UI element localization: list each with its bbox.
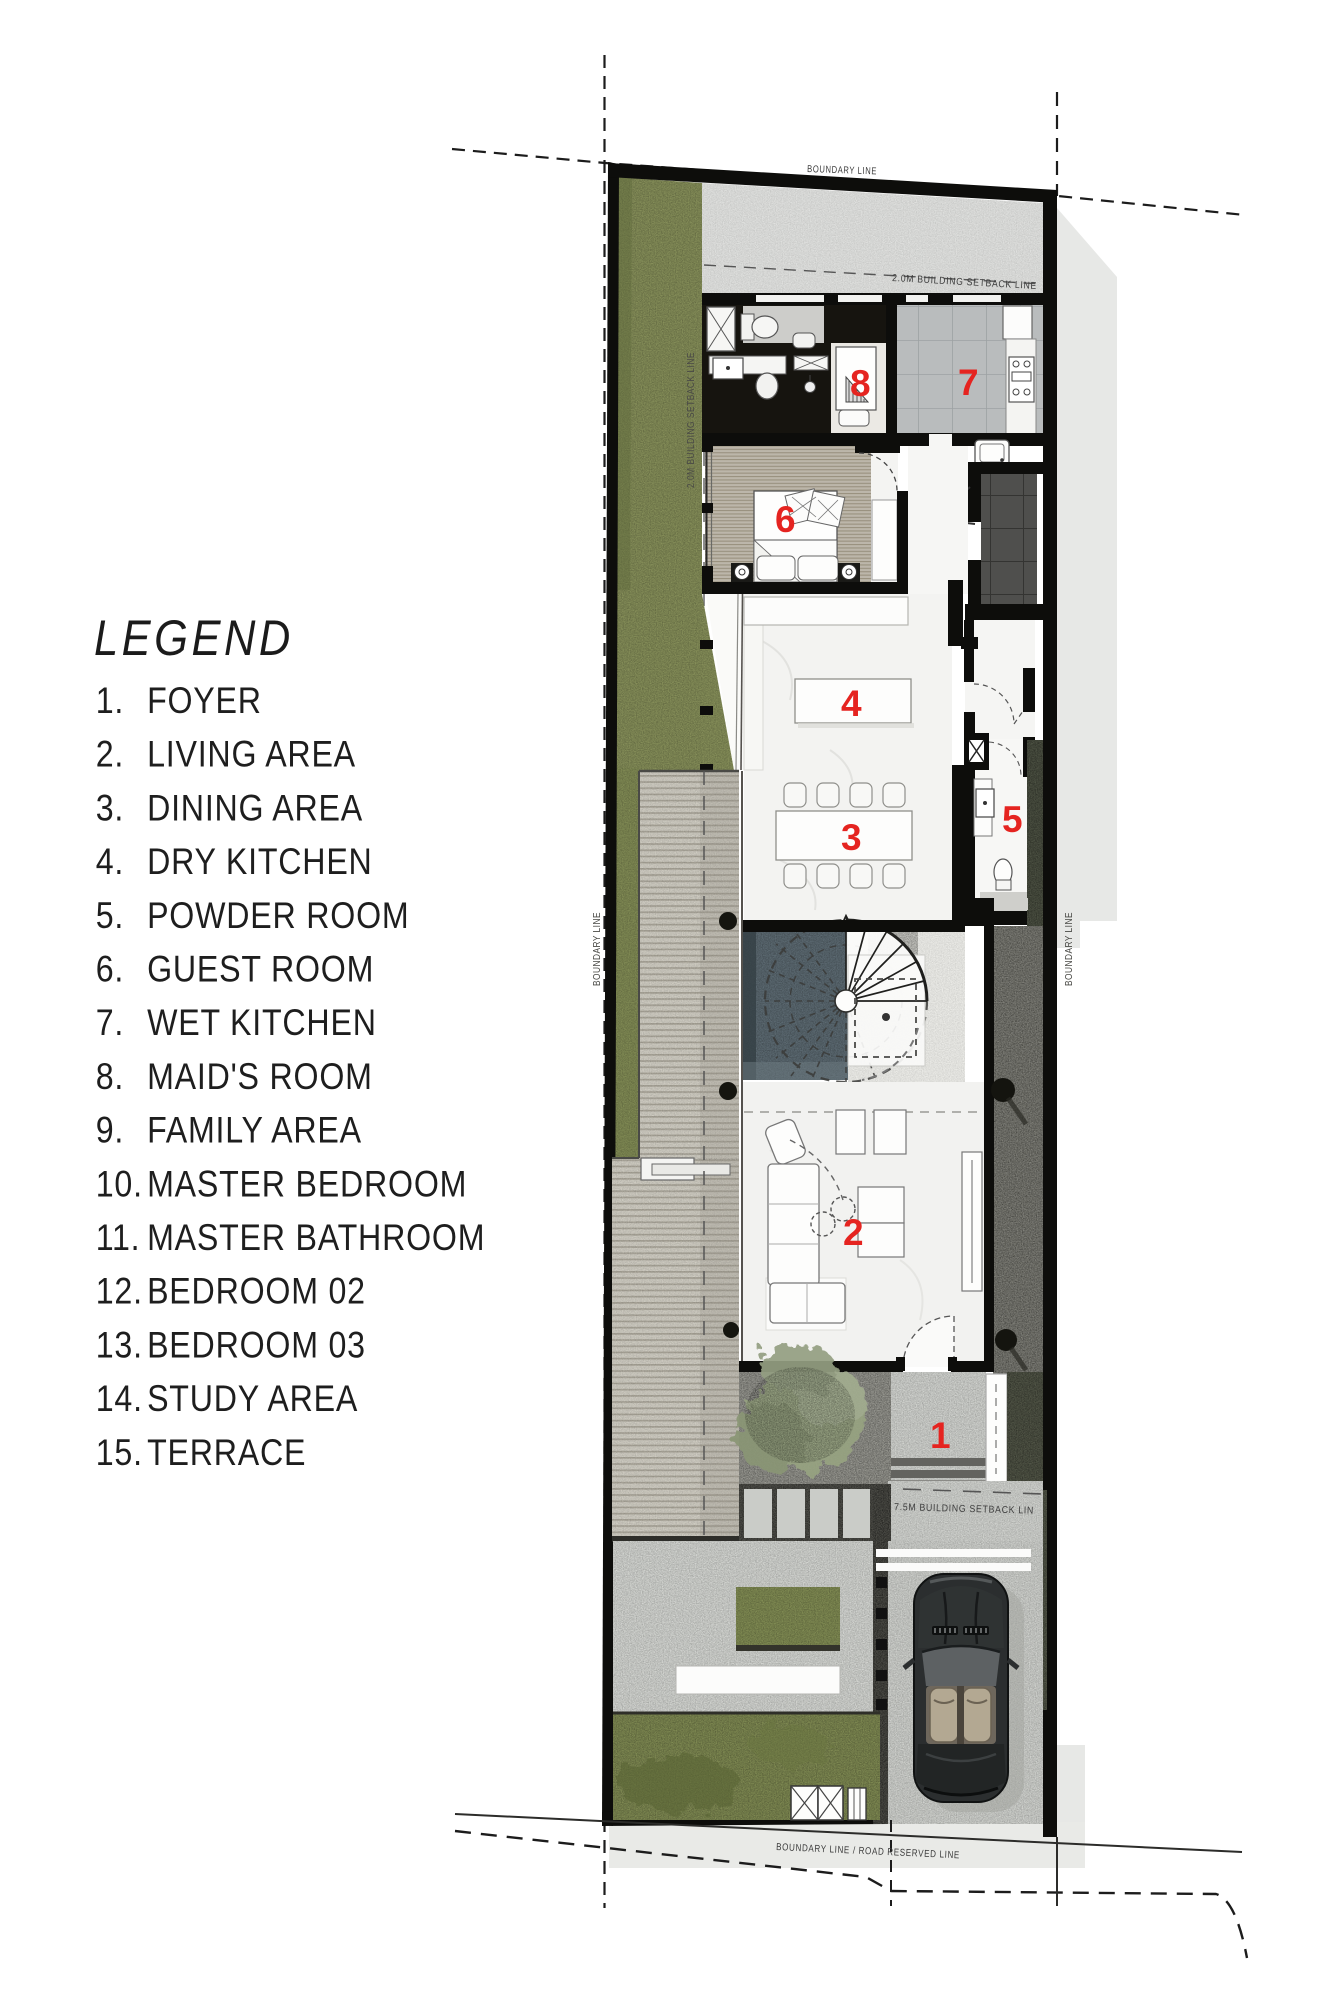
svg-text:5: 5	[1002, 799, 1023, 840]
svg-text:MAID'S ROOM: MAID'S ROOM	[147, 1057, 373, 1098]
svg-text:7.: 7.	[96, 1003, 124, 1044]
svg-text:FOYER: FOYER	[147, 681, 262, 722]
svg-text:9.: 9.	[96, 1111, 124, 1152]
svg-text:LIVING AREA: LIVING AREA	[147, 735, 356, 776]
svg-text:GUEST ROOM: GUEST ROOM	[147, 949, 374, 990]
svg-text:7: 7	[958, 362, 979, 403]
svg-text:14.: 14.	[96, 1379, 143, 1420]
svg-text:BEDROOM 02: BEDROOM 02	[147, 1272, 366, 1313]
svg-text:MASTER BATHROOM: MASTER BATHROOM	[147, 1218, 485, 1259]
svg-text:1.: 1.	[96, 681, 124, 722]
svg-text:4: 4	[841, 683, 862, 724]
svg-text:11.: 11.	[96, 1218, 141, 1259]
svg-text:8: 8	[850, 363, 871, 404]
svg-text:BOUNDARY LINE: BOUNDARY LINE	[1064, 912, 1075, 986]
svg-text:6.: 6.	[96, 949, 124, 990]
svg-text:2: 2	[843, 1212, 864, 1253]
svg-text:1: 1	[930, 1415, 951, 1456]
svg-text:3.: 3.	[96, 788, 124, 829]
svg-text:2.0M BUILDING SETBACK LINE: 2.0M BUILDING SETBACK LINE	[686, 352, 697, 488]
svg-text:8.: 8.	[96, 1057, 124, 1098]
svg-text:5.: 5.	[96, 896, 124, 937]
svg-text:13.: 13.	[96, 1325, 143, 1366]
svg-text:BOUNDARY LINE: BOUNDARY LINE	[592, 912, 603, 986]
svg-text:FAMILY AREA: FAMILY AREA	[147, 1111, 362, 1152]
svg-text:MASTER BEDROOM: MASTER BEDROOM	[147, 1164, 467, 1205]
svg-text:6: 6	[775, 499, 796, 540]
svg-text:LEGEND: LEGEND	[94, 610, 294, 665]
svg-text:WET KITCHEN: WET KITCHEN	[147, 1003, 377, 1044]
svg-text:3: 3	[841, 817, 862, 858]
svg-text:10.: 10.	[96, 1164, 143, 1205]
svg-text:12.: 12.	[96, 1272, 143, 1313]
svg-text:TERRACE: TERRACE	[147, 1433, 306, 1474]
svg-text:POWDER ROOM: POWDER ROOM	[147, 896, 409, 937]
svg-text:15.: 15.	[96, 1433, 143, 1474]
svg-text:2.: 2.	[96, 735, 124, 776]
svg-text:DRY KITCHEN: DRY KITCHEN	[147, 842, 373, 883]
svg-text:4.: 4.	[96, 842, 124, 883]
svg-text:STUDY AREA: STUDY AREA	[147, 1379, 358, 1420]
svg-text:DINING AREA: DINING AREA	[147, 788, 363, 829]
svg-text:BEDROOM 03: BEDROOM 03	[147, 1325, 366, 1366]
